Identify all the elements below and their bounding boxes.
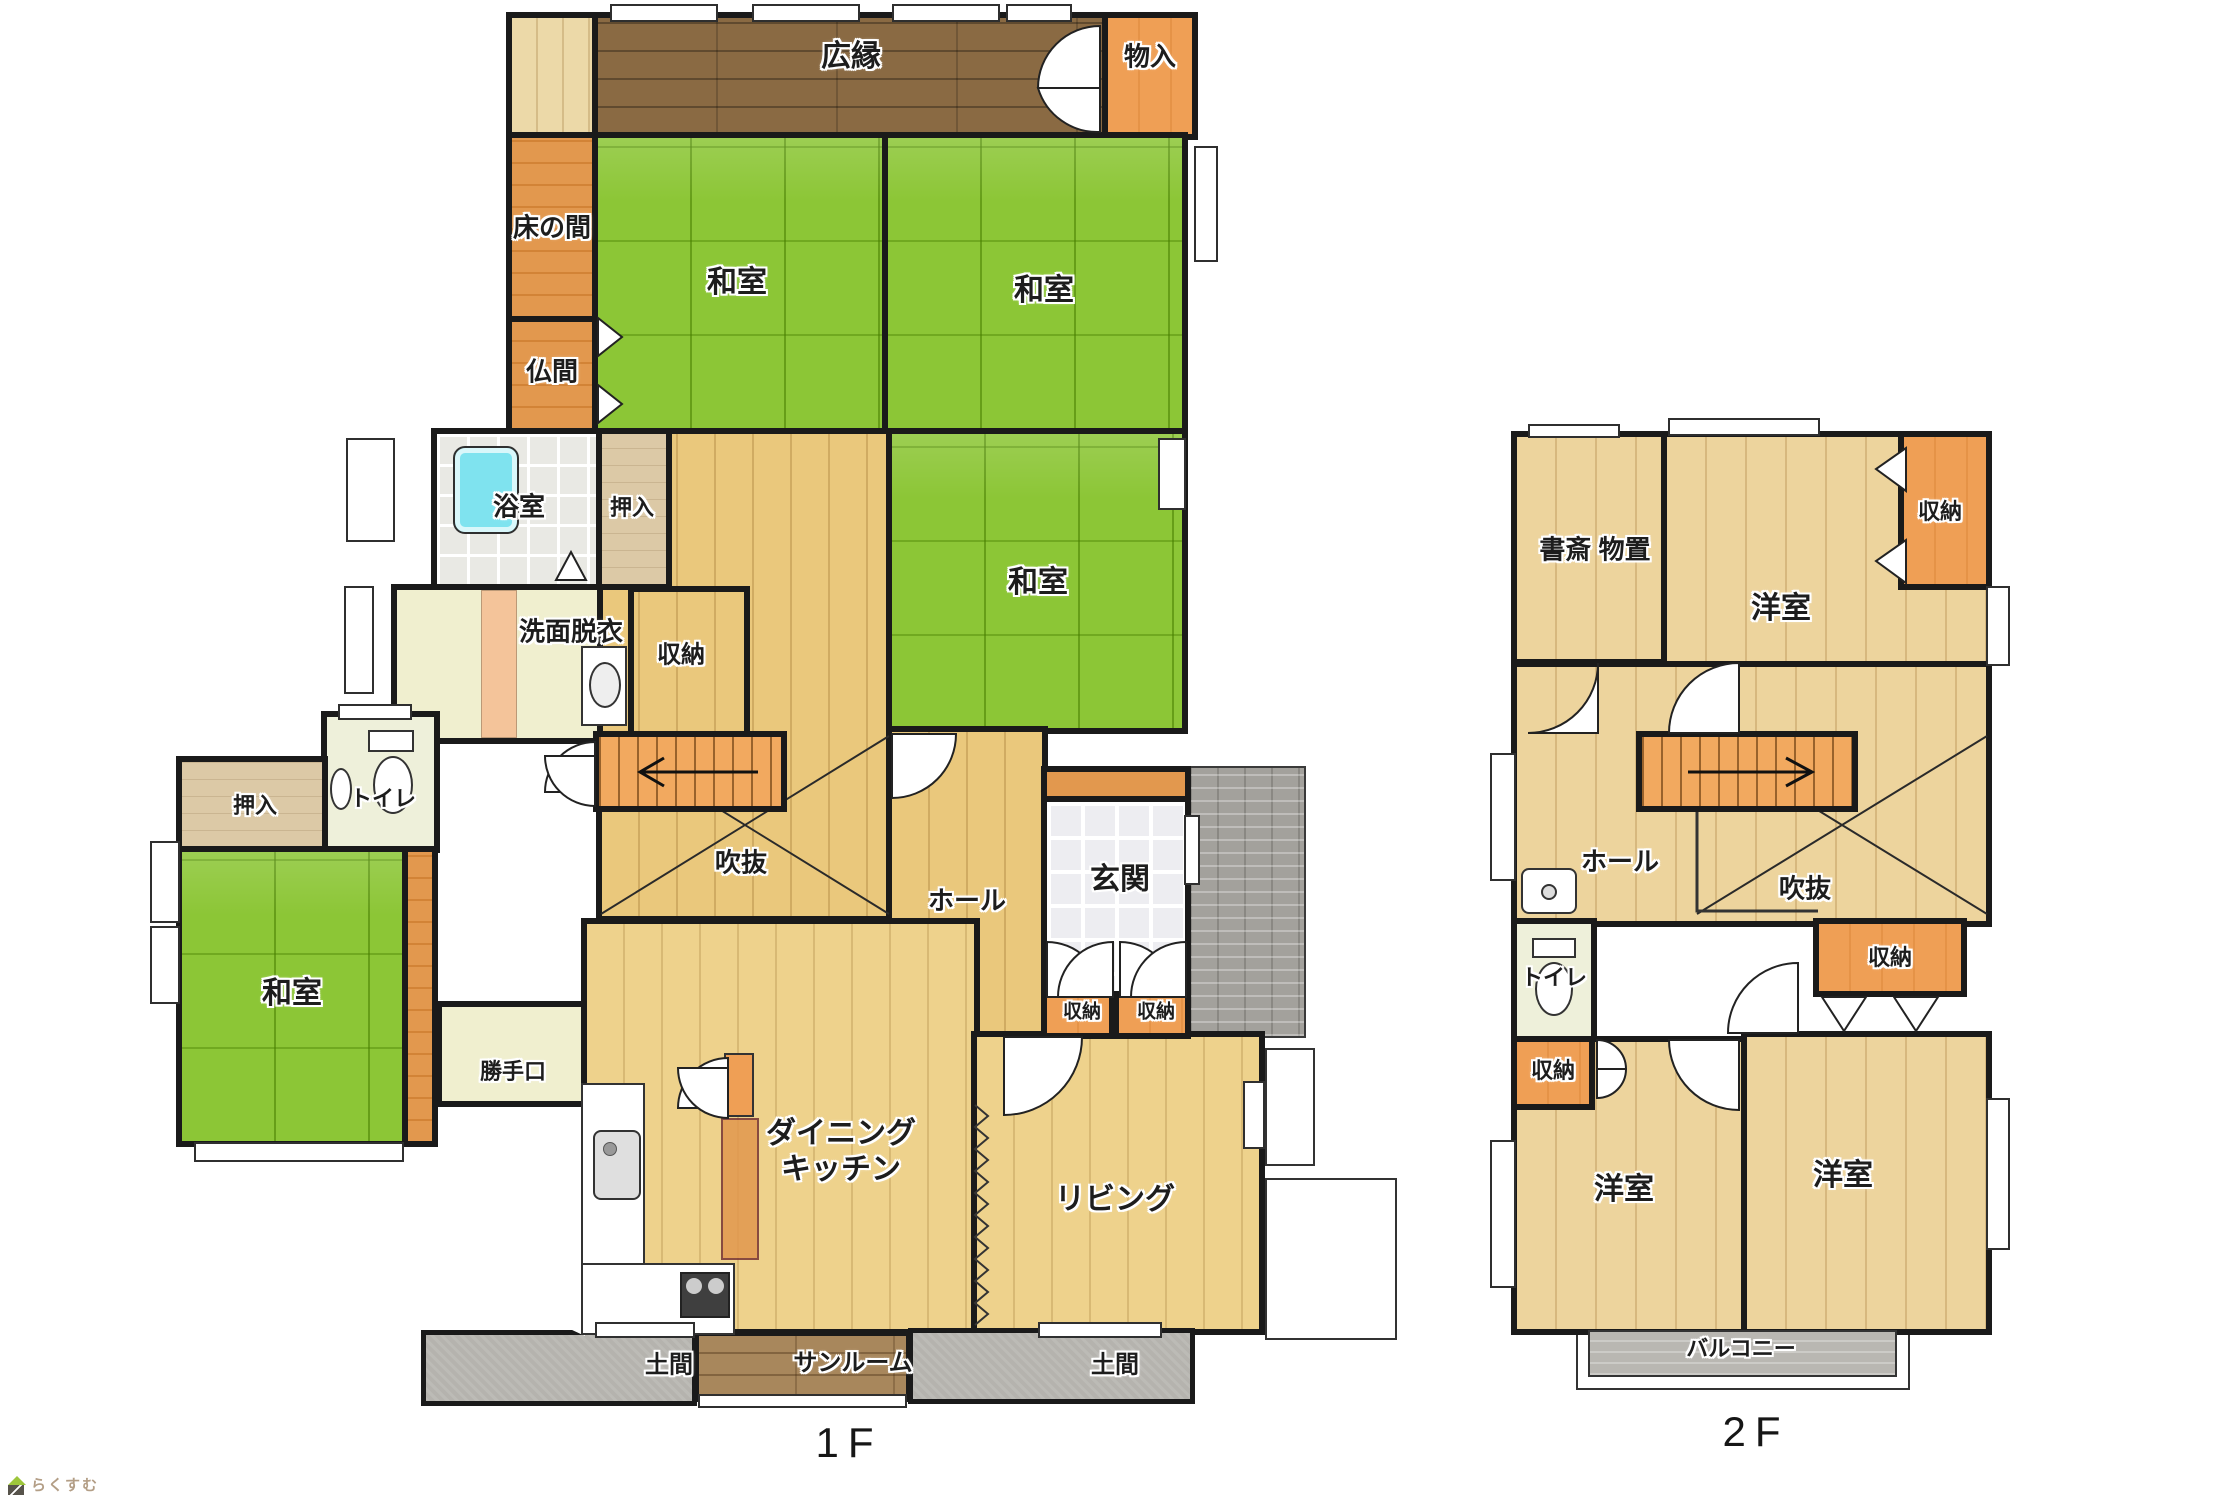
house-icon [8,1476,26,1495]
floor-label-2f: 2F [1722,1407,1789,1457]
room-label-dk: ダイニング キッチン [766,1116,916,1188]
room-label-fukinuke-1f: 吹抜 [715,847,767,878]
room-label-shuno-g2: 収納 [1137,1002,1175,1025]
room-label-oshiire-west: 押入 [233,793,277,819]
room-label-genkan: 玄関 [1090,862,1150,898]
room-label-doma-left: 土間 [645,1352,693,1381]
room-label-dk-line1: ダイニング [766,1116,916,1152]
room-label-katteguchi: 勝手口 [480,1059,546,1085]
window-top-1 [610,4,718,22]
window-west-bottom [194,1142,404,1162]
room-label-washitsu-nw: 和室 [707,265,767,301]
outside-step-1 [1265,1048,1315,1166]
window-washitsu-mid [1158,438,1186,510]
room-label-shuno-e: 収納 [1868,945,1912,971]
room-label-monoire: 物入 [1124,41,1176,72]
dk-closet-icon [724,1053,754,1117]
bay-window-icon [501,1140,585,1336]
faucet-icon [603,1142,617,1156]
room-label-balcony: バルコニー [1686,1336,1796,1362]
window-2f-left2 [1490,1140,1516,1288]
window-2f-topleft [1528,424,1620,438]
room-label-sunroom: サンルーム [793,1350,912,1379]
washbasin-drain-icon-2f [1541,884,1557,900]
room-label-yoshitsu-n: 洋室 [1751,591,1811,627]
stairs-2f [1636,731,1858,812]
washing-machine-drum-icon [589,662,621,708]
stove-icon [680,1272,730,1318]
kitchen-sink-icon [593,1130,641,1200]
window-bath [346,438,395,542]
stove-burner-left-icon [686,1278,702,1294]
room-label-toilet-2f: トイレ [1521,965,1587,991]
room-tokonoma-upper-strip-1f [506,12,598,138]
room-label-toilet-1f: トイレ [350,786,416,812]
room-label-hall-2f: ホール [1581,846,1659,877]
room-label-washitsu-ne: 和室 [1014,273,1074,309]
outside-step-2 [1265,1178,1397,1340]
room-hiroen-1f [592,12,1110,140]
room-label-yoshitsu-sw: 洋室 [1594,1172,1654,1208]
room-label-dk-line2: キッチン [766,1152,916,1188]
door-arc-yoshitsu-se-2f [1728,963,1798,1033]
floor-label-1f: 1F [815,1418,882,1468]
folding-door-triangle-shuno-e-2 [1894,997,1938,1031]
stairs-1f [593,731,787,812]
room-label-oshiire-center: 押入 [610,495,654,521]
room-label-fukinuke-2f: 吹抜 [1779,873,1831,904]
room-label-tokonoma: 床の間 [513,212,591,243]
room-label-senmen: 洗面脱衣 [519,616,623,647]
window-toilet-1f [338,704,412,720]
room-monoire-1f [1102,12,1198,140]
toilet-tank-icon-2f [1532,938,1576,958]
room-label-shosai: 書斎 物置 [1539,534,1650,565]
stove-burner-right-icon [708,1278,724,1294]
window-west-2 [150,926,180,1004]
genkan-entry-door [1184,815,1200,885]
room-label-hiroen: 広縁 [821,39,881,75]
washbasin-counter-icon [481,590,517,738]
entrance-porch-1f [1188,766,1306,1038]
window-east-top [1194,146,1218,262]
door-arc-stairhall-2 [545,756,595,806]
pantry-strip-icon [721,1118,759,1260]
door-arc-stairhall-1 [545,742,595,792]
toilet-tank-icon [368,730,414,752]
window-living-east [1243,1081,1265,1149]
window-living-bottom [1038,1322,1162,1338]
window-senmen [344,586,374,694]
site-logo-text: らくすむ [31,1474,99,1495]
room-label-shuno-g1: 収納 [1063,1002,1101,1025]
room-label-shuno-sw: 収納 [1531,1058,1575,1084]
window-2f-right1 [1986,586,2010,666]
window-west-1 [150,841,180,923]
window-2f-right2 [1986,1098,2010,1250]
room-label-yoshitsu-se: 洋室 [1813,1158,1873,1194]
room-label-hall-1f: ホール [928,885,1006,916]
window-2f-left1 [1490,753,1516,881]
engawa-strip-1f [402,846,438,1147]
room-genkan-1f [1041,796,1191,1000]
room-label-washitsu-mid: 和室 [1008,565,1068,601]
room-label-living: リビング [1055,1182,1175,1218]
window-2f-top [1668,418,1820,436]
window-top-4 [1006,4,1072,22]
toilet-basin-icon [330,768,352,810]
window-top-3 [892,4,1000,22]
room-katteguchi-1f [436,1001,588,1107]
room-label-shuno-ne: 収納 [1918,499,1962,525]
site-logo: らくすむ [8,1474,99,1495]
folding-door-triangle-shuno-e-1 [1822,997,1866,1031]
room-label-butsuma: 仏間 [526,356,578,387]
window-top-2 [752,4,860,22]
floorplan-canvas: 広縁 物入 床の間 仏間 和室 和室 和室 浴室 押入 洗面脱衣 収納 トイレ … [0,0,2218,1501]
room-label-washitsu-w: 和室 [262,976,322,1012]
sunroom-window [698,1394,907,1408]
room-label-bath: 浴室 [493,491,545,522]
window-dk-bottom [595,1322,695,1338]
doma-right-1f [908,1328,1195,1404]
room-label-shuno-center: 収納 [657,642,705,671]
room-label-doma-right: 土間 [1091,1352,1139,1381]
